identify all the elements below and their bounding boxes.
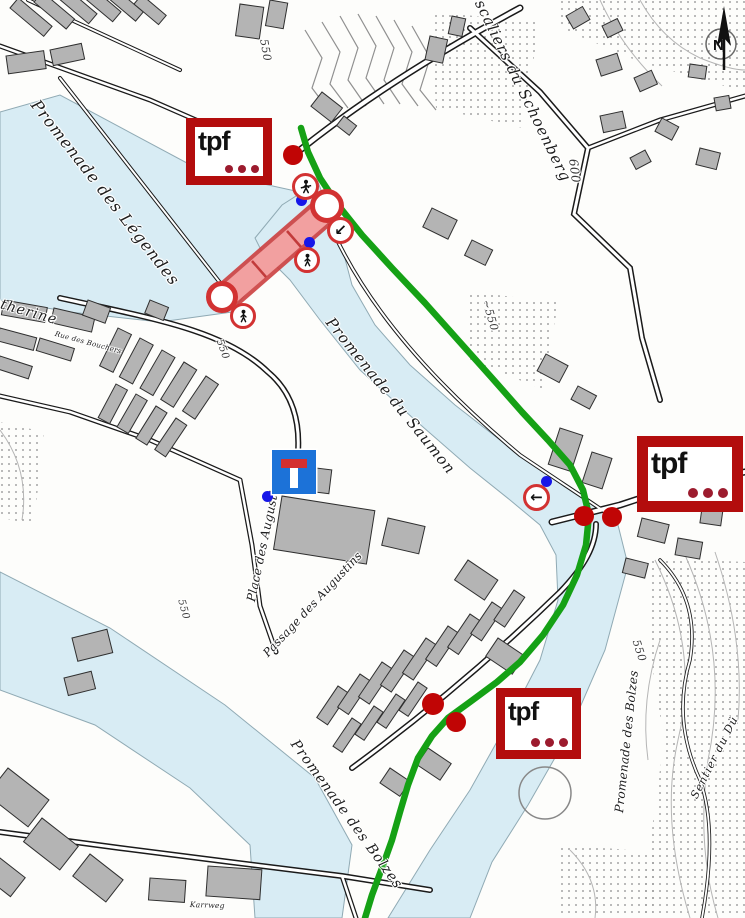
tpf-logo-dot — [703, 488, 713, 498]
bus-stop-dot — [283, 145, 303, 165]
bus-stop-dot — [574, 506, 594, 526]
dead-end-sign-stem — [290, 468, 298, 488]
bus-stop-dot — [422, 693, 444, 715]
tpf-logo-dot — [718, 488, 728, 498]
tpf-logo-dots — [531, 738, 568, 747]
direction-arrow-sign: ← — [523, 484, 550, 511]
tpf-logo-dots — [688, 488, 728, 498]
tpf-logo-dot — [531, 738, 540, 747]
pedestrian-icon — [238, 309, 249, 323]
tpf-logo-dots — [225, 165, 259, 173]
bus-stop-dot — [446, 712, 466, 732]
north-arrow-label: N — [713, 37, 724, 54]
tpf-logo-dot — [238, 165, 246, 173]
tpf-logo-dot — [225, 165, 233, 173]
arrow-left-icon: ← — [530, 490, 543, 505]
map-canvas[interactable]: Promenade des Légendes atherine Rue des … — [0, 0, 745, 918]
tpf-logo: tpf — [496, 688, 581, 759]
tpf-logo-text: tpf — [651, 447, 686, 480]
tpf-logo-text: tpf — [198, 127, 229, 157]
north-arrow: N — [696, 2, 745, 85]
direction-arrow-sign: ↙ — [327, 217, 354, 244]
tpf-logo-dot — [559, 738, 568, 747]
street-label-karrweg: Karrweg — [190, 900, 225, 910]
tpf-logo-text: tpf — [508, 697, 538, 726]
arrow-down-left-icon: ↙ — [334, 223, 347, 238]
basemap — [0, 0, 745, 918]
tpf-logo-dot — [688, 488, 698, 498]
pedestrian-access-sign — [294, 247, 320, 273]
elevation-label: 600 — [566, 158, 583, 184]
dead-end-sign — [272, 450, 316, 494]
tpf-logo-dot — [545, 738, 554, 747]
pedestrian-icon — [302, 253, 313, 267]
pedestrian-access-sign — [230, 303, 256, 329]
no-pedestrian-icon — [300, 179, 312, 194]
bus-stop-dot — [602, 507, 622, 527]
tpf-logo: tpf — [186, 118, 272, 185]
dead-end-sign-icon — [281, 459, 307, 468]
tpf-logo-dot — [251, 165, 259, 173]
tpf-logo: tpf — [637, 436, 743, 512]
